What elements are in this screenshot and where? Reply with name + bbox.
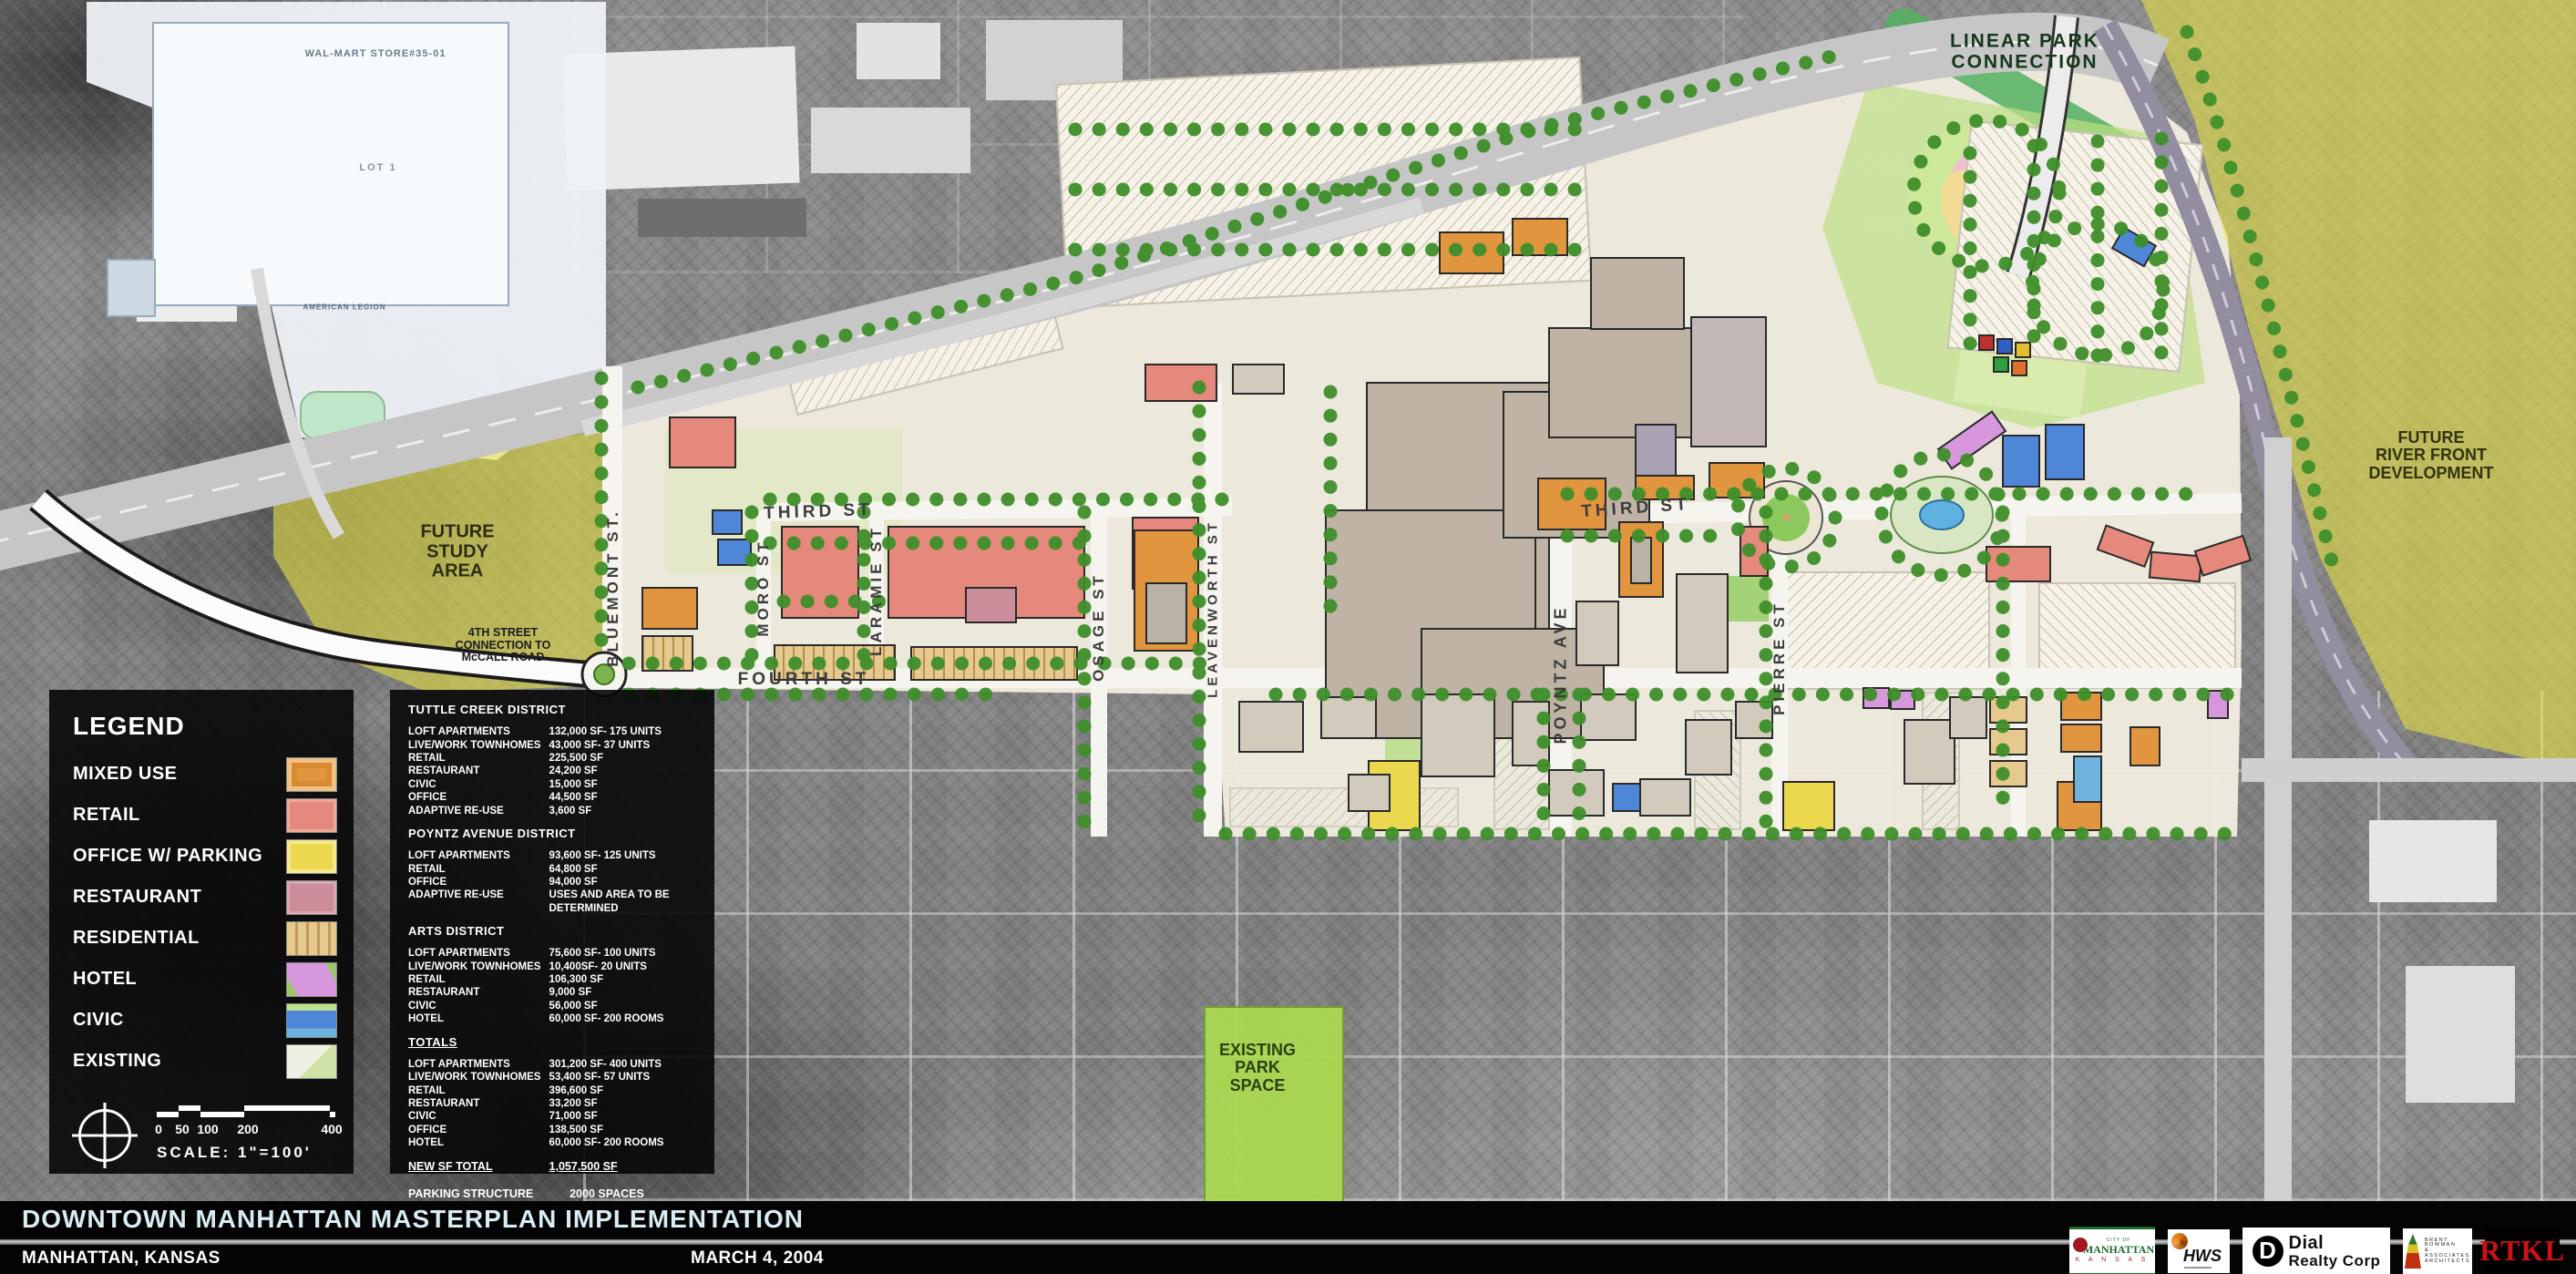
legend-item-label: RESTAURANT (73, 887, 201, 908)
stat-row: HOTEL60,000 SF- 200 ROOMS (408, 1136, 702, 1149)
stat-row: RETAIL64,800 SF (408, 863, 702, 876)
logo-brent-bowman: BRENTBOWMAN& ASSOCIATESARCHITECTS (2403, 1228, 2472, 1274)
stat-row: LOFT APARTMENTS75,600 SF- 100 UNITS (408, 947, 702, 960)
street-label-osage: OSAGE ST (1090, 572, 1108, 682)
scale-ticks: 050100200400 (157, 1118, 366, 1136)
logo-hws: HWS (2168, 1229, 2230, 1273)
stat-row: OFFICE94,000 SF (408, 876, 702, 889)
legend-item-label: MIXED USE (73, 764, 178, 785)
district-header: ARTS DISTRICT (408, 924, 702, 939)
study-area-label: FUTURE STUDY AREA (420, 523, 494, 582)
legend-item-office: OFFICE W/ PARKING (73, 836, 337, 877)
stat-row: OFFICE44,500 SF (408, 791, 702, 804)
district-header: POYNTZ AVENUE DISTRICT (408, 827, 702, 841)
stat-row: RETAIL396,600 SF (408, 1084, 702, 1097)
scale-tick: 0 (155, 1122, 162, 1136)
stat-row: RETAIL106,300 SF (408, 973, 702, 986)
district-statistics: TUTTLE CREEK DISTRICTLOFT APARTMENTS132,… (408, 703, 702, 1149)
legend-item-existing: EXISTING (73, 1041, 337, 1082)
scale-tick: 200 (237, 1122, 258, 1136)
stat-row: RETAIL225,500 SF (408, 752, 702, 765)
stat-row: LOFT APARTMENTS301,200 SF- 400 UNITS (408, 1058, 702, 1071)
street-label-fourth: FOURTH ST (738, 670, 870, 690)
existing-park-label: EXISTING PARK SPACE (1219, 1042, 1296, 1094)
scale-tick: 100 (197, 1122, 218, 1136)
stat-row: RESTAURANT9,000 SF (408, 986, 702, 999)
fourth-connection-label: 4TH STREET CONNECTION TO McCALL ROAD (456, 627, 551, 664)
street-label-third-east: THIRD ST (1581, 495, 1691, 522)
map-labels: LINEAR PARK CONNECTION FUTURE RIVER FRON… (0, 0, 2576, 1274)
legend-item-label: EXISTING (73, 1051, 161, 1072)
stat-row: LOFT APARTMENTS93,600 SF- 125 UNITS (408, 849, 702, 862)
masterplan-sheet: LINEAR PARK CONNECTION FUTURE RIVER FRON… (0, 0, 2576, 1274)
north-compass-icon (78, 1109, 131, 1162)
title-bar: DOWNTOWN MANHATTAN MASTERPLAN IMPLEMENTA… (0, 1201, 2576, 1274)
stat-row: OFFICE138,500 SF (408, 1124, 702, 1136)
legend-item-hotel: HOTEL (73, 959, 337, 1000)
legend-item-label: RESIDENTIAL (73, 928, 200, 949)
legend-item-label: RETAIL (73, 805, 140, 826)
street-label-moro: MORO ST (754, 539, 773, 636)
street-label-leavenworth: LEAVENWORTH ST (1206, 519, 1221, 698)
linear-park-label: LINEAR PARK CONNECTION (1950, 31, 2099, 72)
sheet-title: DOWNTOWN MANHATTAN MASTERPLAN IMPLEMENTA… (22, 1205, 804, 1234)
street-label-pierre: PIERRE ST (1770, 601, 1789, 715)
stat-row: ADAPTIVE RE-USE3,600 SF (408, 805, 702, 817)
american-legion-label: AMERICAN LEGION (303, 304, 386, 313)
scale-label: SCALE: 1"=100' (157, 1144, 366, 1162)
legend-title: LEGEND (73, 712, 337, 741)
scale-tick: 50 (175, 1122, 190, 1136)
new-sf-total-label: NEW SF TOTAL (408, 1160, 549, 1175)
stat-row: CIVIC56,000 SF (408, 1000, 702, 1012)
statistics-panel: TUTTLE CREEK DISTRICTLOFT APARTMENTS132,… (390, 690, 714, 1174)
logo-rtkl: RTKL (2485, 1228, 2560, 1274)
stat-row: LOFT APARTMENTS132,000 SF- 175 UNITS (408, 725, 702, 738)
logo-city-of-manhattan: CITY OFMANHATTANK A N S A S (2069, 1227, 2155, 1274)
street-label-third-west: THIRD ST (764, 500, 873, 524)
legend-swatch-mixed (286, 757, 337, 792)
street-label-bluemont: BLUEMONT ST. (604, 509, 622, 667)
legend-item-retail: RETAIL (73, 795, 337, 836)
stat-row: LIVE/WORK TOWNHOMES10,400SF- 20 UNITS (408, 961, 702, 973)
legend-item-residential: RESIDENTIAL (73, 918, 337, 959)
stat-row: LIVE/WORK TOWNHOMES53,400 SF- 57 UNITS (408, 1071, 702, 1084)
stat-row: LIVE/WORK TOWNHOMES43,000 SF- 37 UNITS (408, 739, 702, 752)
river-front-label: FUTURE RIVER FRONT DEVELOPMENT (2368, 429, 2493, 482)
lot1-label: LOT 1 (359, 163, 396, 174)
legend-swatch-retail (286, 798, 337, 833)
legend-item-restaurant: RESTAURANT (73, 877, 337, 918)
district-header: TOTALS (408, 1035, 702, 1050)
walmart-label: WAL-MART STORE#35-01 (305, 49, 446, 60)
stat-row: HOTEL60,000 SF- 200 ROOMS (408, 1012, 702, 1025)
legend-swatch-office (286, 839, 337, 874)
logo-dial-realty: DialRealty Corp (2242, 1228, 2390, 1274)
legend-swatch-restaurant (286, 880, 337, 915)
new-sf-total-row: NEW SF TOTAL 1,057,500 SF (408, 1160, 702, 1175)
street-label-laramie: LARAMIE ST (867, 525, 886, 656)
legend-swatch-existing (286, 1044, 337, 1079)
legend-item-label: OFFICE W/ PARKING (73, 846, 262, 867)
legend-item-civic: CIVIC (73, 1000, 337, 1041)
legend-panel: LEGEND MIXED USERETAILOFFICE W/ PARKINGR… (49, 690, 354, 1174)
legend-item-label: HOTEL (73, 969, 137, 990)
legend-items: MIXED USERETAILOFFICE W/ PARKINGRESTAURA… (73, 754, 337, 1082)
legend-swatch-hotel (286, 962, 337, 997)
legend-item-label: CIVIC (73, 1010, 124, 1031)
stat-row: ADAPTIVE RE-USEUSES AND AREA TO BE DETER… (408, 889, 702, 915)
stat-row: CIVIC71,000 SF (408, 1110, 702, 1123)
legend-swatch-residential (286, 921, 337, 956)
new-sf-total-value: 1,057,500 SF (549, 1160, 702, 1175)
date-label: MARCH 4, 2004 (691, 1248, 824, 1269)
street-label-poyntz: POYNTZ AVE (1552, 604, 1571, 744)
scale-tick: 400 (321, 1122, 342, 1136)
stat-row: RESTAURANT33,200 SF (408, 1097, 702, 1110)
legend-swatch-civic (286, 1003, 337, 1038)
scale-bar: 050100200400 SCALE: 1"=100' (157, 1105, 366, 1162)
stat-row: RESTAURANT24,200 SF (408, 765, 702, 777)
consultant-logos: CITY OFMANHATTANK A N S A SHWSDialRealty… (2069, 1227, 2560, 1274)
location-label: MANHATTAN, KANSAS (22, 1248, 221, 1269)
stat-row: CIVIC15,000 SF (408, 778, 702, 791)
district-header: TUTTLE CREEK DISTRICT (408, 703, 702, 717)
legend-item-mixed: MIXED USE (73, 754, 337, 795)
